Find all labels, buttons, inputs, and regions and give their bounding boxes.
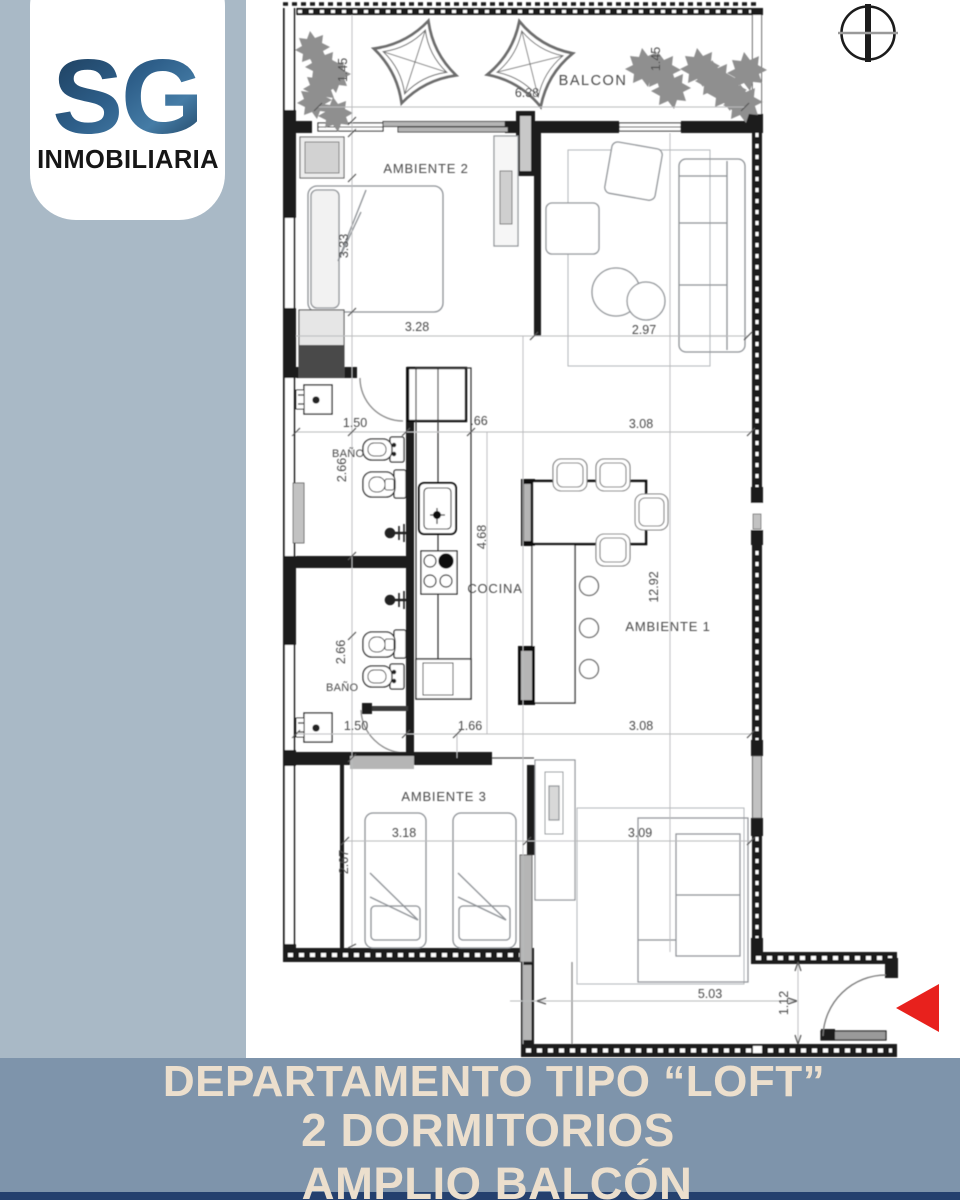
svg-text:2.66: 2.66	[334, 640, 348, 664]
svg-text:3.08: 3.08	[629, 719, 653, 733]
svg-text:2.97: 2.97	[632, 323, 656, 337]
svg-text:2 DORMITORIOS: 2 DORMITORIOS	[301, 1104, 675, 1156]
svg-text:1.12: 1.12	[777, 991, 791, 1015]
svg-text:BAÑO: BAÑO	[326, 681, 359, 694]
svg-text:1.50: 1.50	[343, 416, 367, 430]
svg-text:12.92: 12.92	[647, 571, 661, 602]
svg-text:3.28: 3.28	[405, 320, 429, 334]
svg-text:SG: SG	[52, 38, 201, 156]
svg-text:AMBIENTE 1: AMBIENTE 1	[625, 619, 710, 634]
svg-text:6.38: 6.38	[515, 86, 539, 100]
svg-text:AMBIENTE 2: AMBIENTE 2	[383, 161, 468, 176]
svg-text:3.33: 3.33	[337, 234, 351, 258]
svg-text:3.09: 3.09	[628, 826, 652, 840]
svg-text:1.45: 1.45	[649, 47, 663, 71]
svg-text:.66: .66	[470, 414, 487, 428]
svg-text:BALCON: BALCON	[559, 73, 628, 89]
svg-text:3.08: 3.08	[629, 417, 653, 431]
svg-text:2.67: 2.67	[337, 850, 351, 874]
svg-text:INMOBILIARIA: INMOBILIARIA	[37, 146, 219, 174]
svg-text:5.03: 5.03	[698, 987, 722, 1001]
svg-text:DEPARTAMENTO TIPO “LOFT”: DEPARTAMENTO TIPO “LOFT”	[163, 1057, 825, 1106]
svg-text:3.18: 3.18	[392, 826, 416, 840]
svg-text:1.66: 1.66	[458, 719, 482, 733]
svg-text:4.68: 4.68	[475, 525, 489, 549]
svg-text:1.50: 1.50	[344, 719, 368, 733]
svg-text:2.66: 2.66	[335, 458, 349, 482]
svg-text:COCINA: COCINA	[467, 581, 522, 596]
svg-text:AMPLIO BALCÓN: AMPLIO BALCÓN	[302, 1157, 693, 1200]
svg-text:AMBIENTE 3: AMBIENTE 3	[401, 789, 486, 804]
svg-text:1.45: 1.45	[336, 58, 350, 82]
